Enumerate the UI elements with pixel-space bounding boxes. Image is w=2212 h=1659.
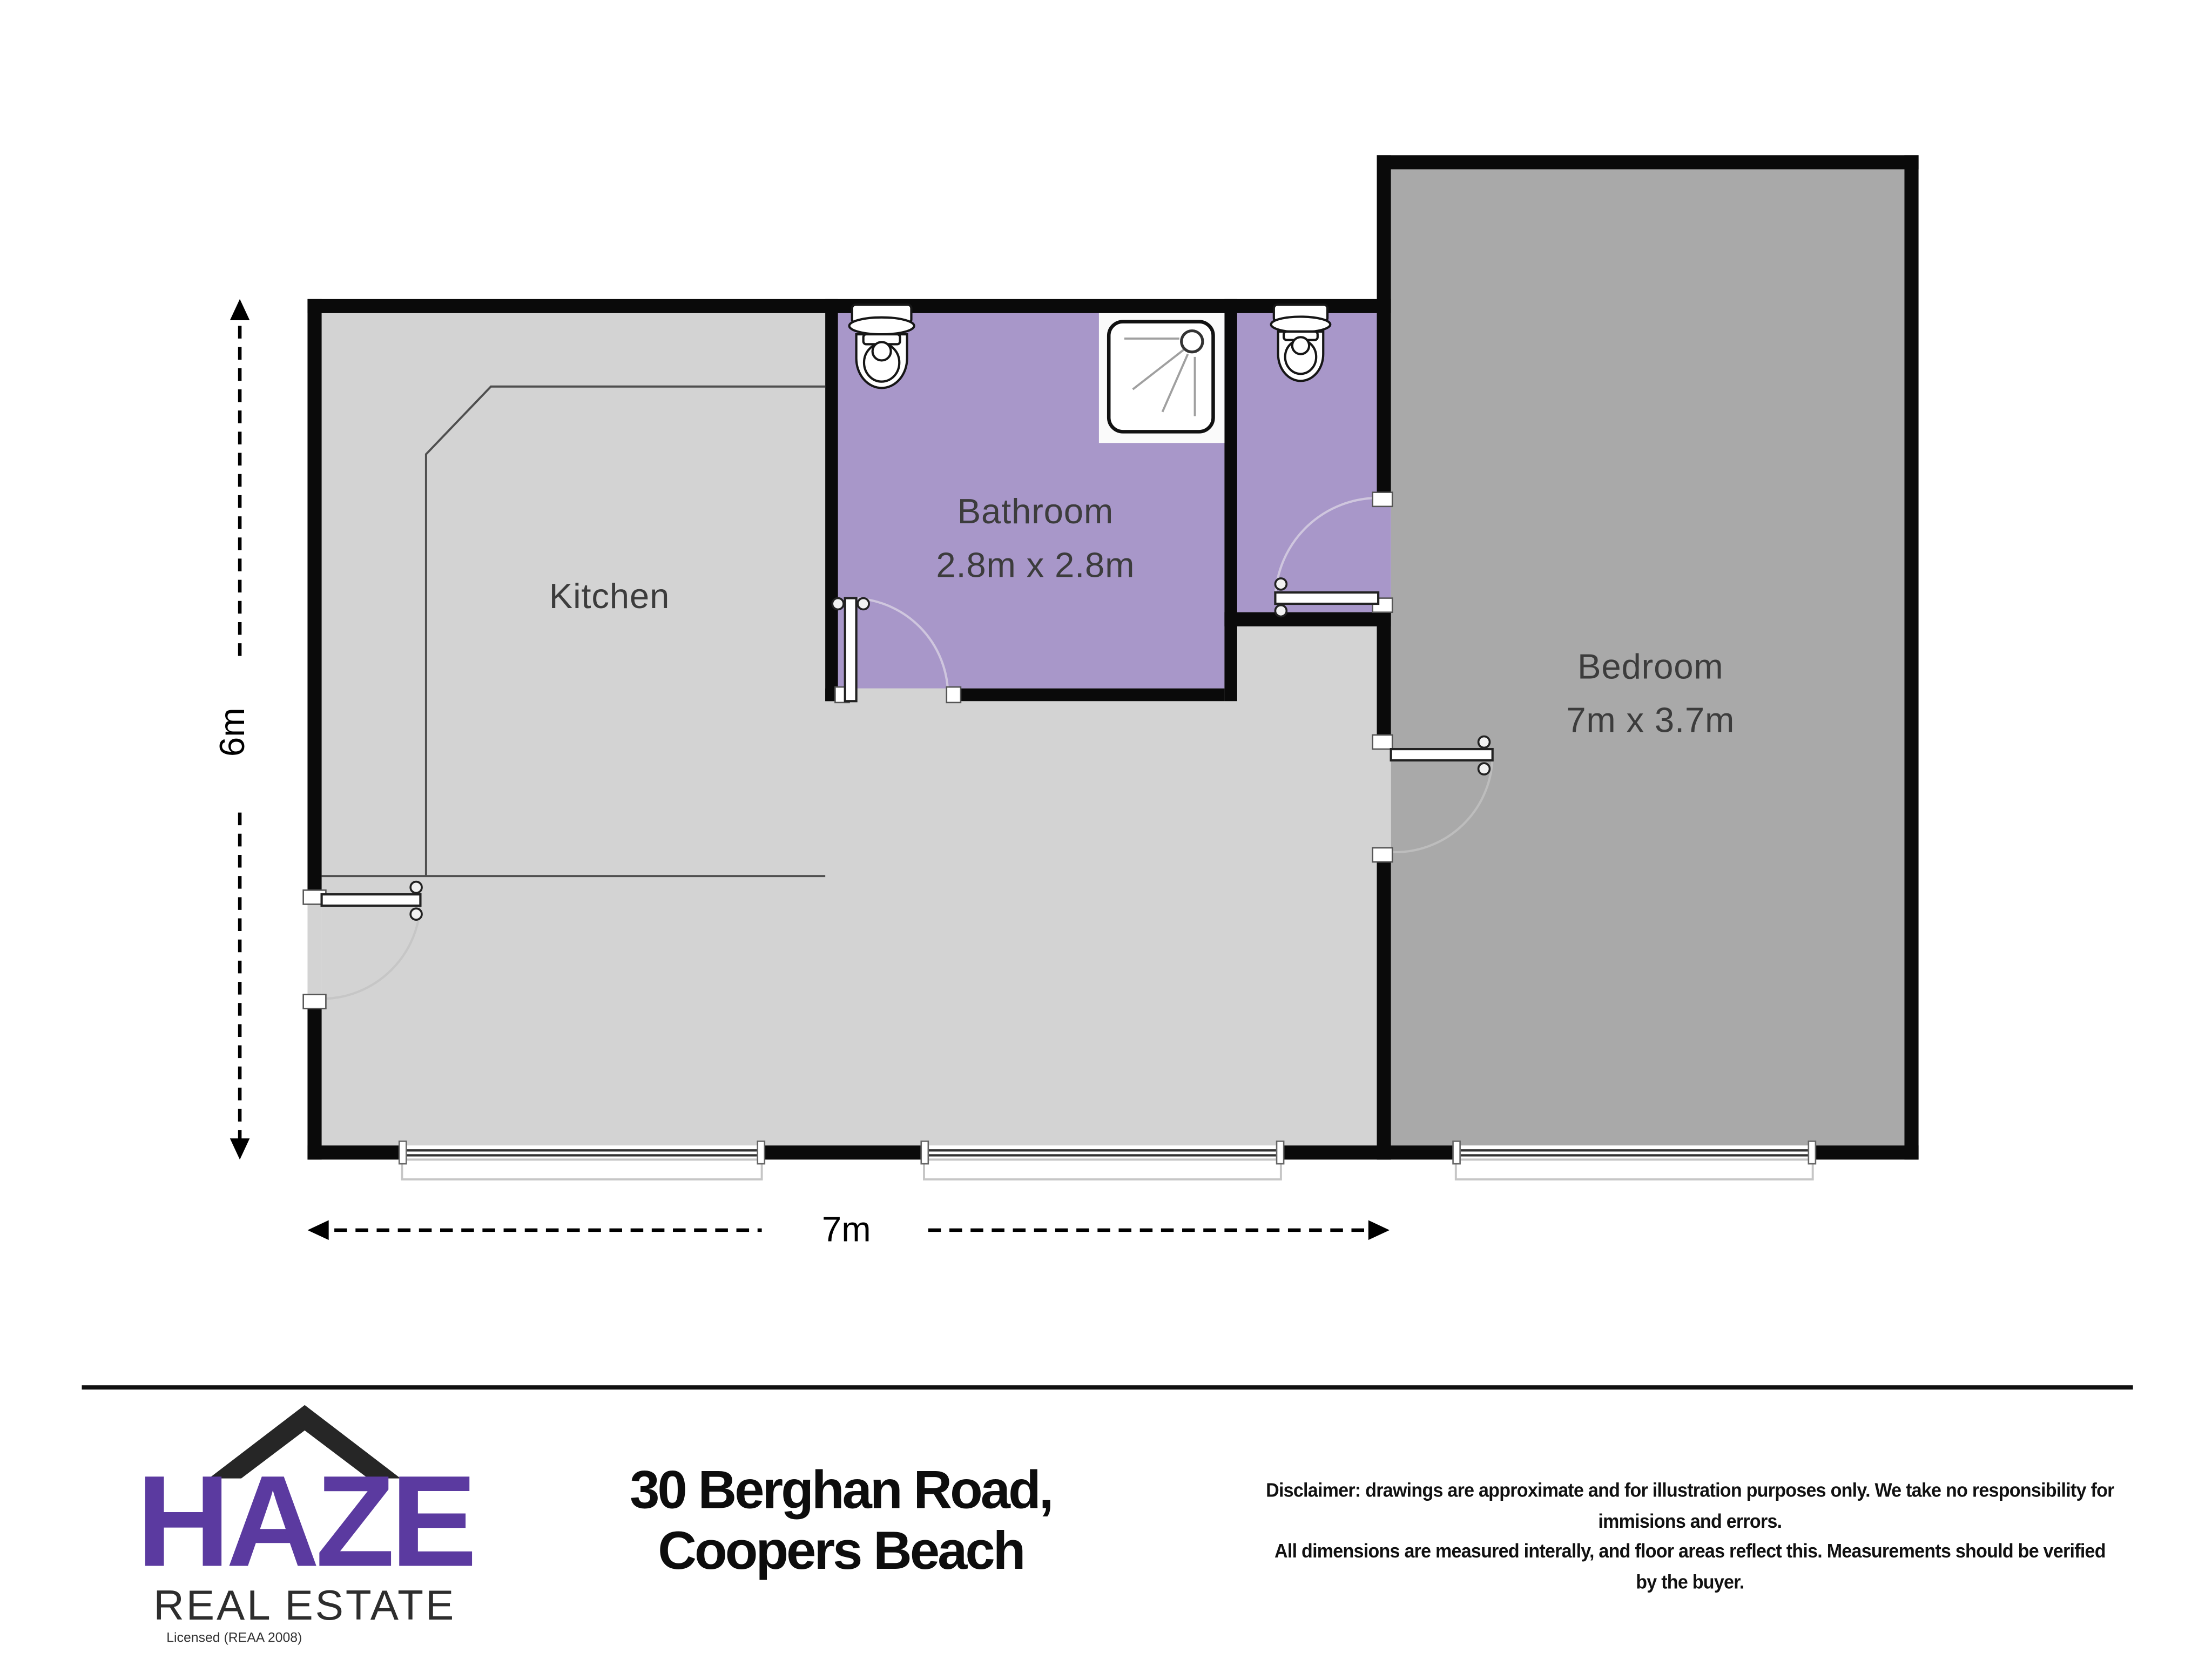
width-dimension-label: 7m: [790, 1210, 903, 1251]
room-dimensions: 2.8m x 2.8m: [894, 539, 1176, 592]
address-line1: 30 Berghan Road,: [592, 1461, 1089, 1522]
shower-icon: [1099, 313, 1224, 443]
door-swing-arc: [322, 900, 421, 999]
plan-graphics: [0, 0, 2212, 1659]
footer-divider: [82, 1385, 2133, 1390]
door-knob-icon: [410, 908, 422, 920]
room-name: Kitchen: [549, 577, 670, 616]
brand-name: HAZE: [136, 1457, 474, 1587]
door-swing-arc: [851, 598, 948, 696]
door-knob-icon: [1479, 737, 1490, 748]
kitchen-counter-outline: [322, 387, 826, 876]
room-name: Bathroom: [894, 485, 1176, 539]
page: Kitchen Bathroom 2.8m x 2.8m Bedroom 7m …: [0, 0, 2212, 1659]
door-knob-icon: [858, 598, 869, 610]
disclaimer-line1: Disclaimer: drawings are approximate and…: [1262, 1475, 2117, 1536]
height-dimension-label: 6m: [213, 690, 255, 774]
door-knob-icon: [410, 882, 422, 893]
door-knob-icon: [832, 598, 844, 610]
bathroom-label: Bathroom 2.8m x 2.8m: [894, 485, 1176, 593]
door-jamb: [1373, 848, 1393, 862]
door-jamb: [304, 995, 326, 1009]
bedroom-label: Bedroom 7m x 3.7m: [1509, 640, 1791, 748]
door-leaf: [322, 894, 421, 906]
door-knob-icon: [1275, 578, 1286, 590]
kitchen-label: Kitchen: [468, 576, 750, 618]
window: [399, 1141, 765, 1179]
door-knob-icon: [1275, 605, 1286, 617]
disclaimer: Disclaimer: drawings are approximate and…: [1262, 1475, 2117, 1597]
door-leaf: [1391, 749, 1493, 760]
room-name: Bedroom: [1509, 640, 1791, 694]
brand-license: Licensed (REAA 2008): [166, 1631, 477, 1647]
door-leaf: [1275, 592, 1378, 604]
door-jamb: [1373, 735, 1393, 749]
address-line2: Coopers Beach: [592, 1522, 1089, 1583]
door-leaf: [845, 598, 857, 702]
window: [921, 1141, 1284, 1179]
door-swing-arc: [1391, 755, 1493, 852]
door-jamb: [1373, 493, 1393, 507]
window: [1453, 1141, 1816, 1179]
brand-tagline: REAL ESTATE: [136, 1583, 474, 1631]
door-swing-arc: [1275, 498, 1379, 598]
property-address: 30 Berghan Road, Coopers Beach: [592, 1461, 1089, 1583]
disclaimer-line2: All dimensions are measured interally, a…: [1262, 1536, 2117, 1597]
door-jamb: [947, 687, 961, 703]
door-knob-icon: [1479, 763, 1490, 774]
toilet-icon: [849, 305, 914, 388]
toilet-icon: [1271, 305, 1331, 381]
room-dimensions: 7m x 3.7m: [1509, 694, 1791, 747]
